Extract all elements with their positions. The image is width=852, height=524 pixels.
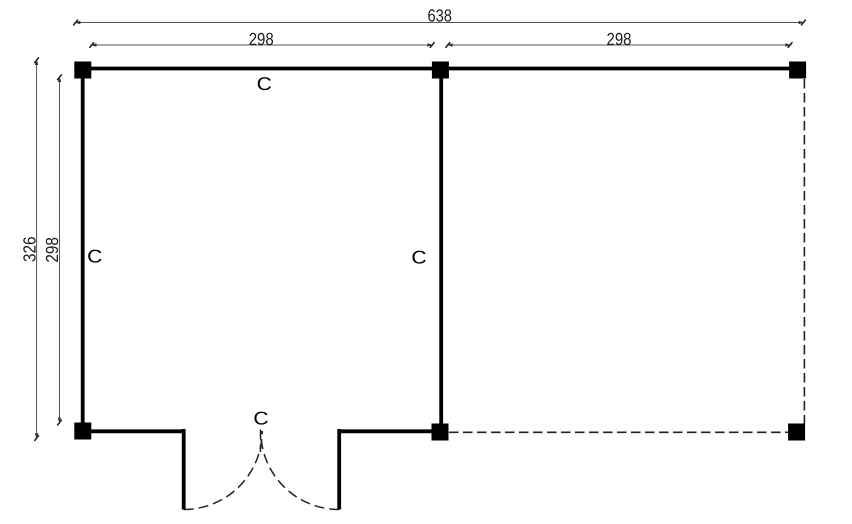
svg-text:C: C — [411, 246, 426, 267]
svg-text:298: 298 — [249, 29, 274, 49]
svg-text:C: C — [87, 245, 102, 266]
svg-text:326: 326 — [20, 237, 40, 262]
svg-text:C: C — [257, 73, 272, 94]
svg-text:298: 298 — [607, 29, 632, 49]
svg-text:298: 298 — [42, 237, 62, 263]
svg-text:638: 638 — [427, 6, 452, 26]
svg-text:C: C — [253, 407, 268, 428]
